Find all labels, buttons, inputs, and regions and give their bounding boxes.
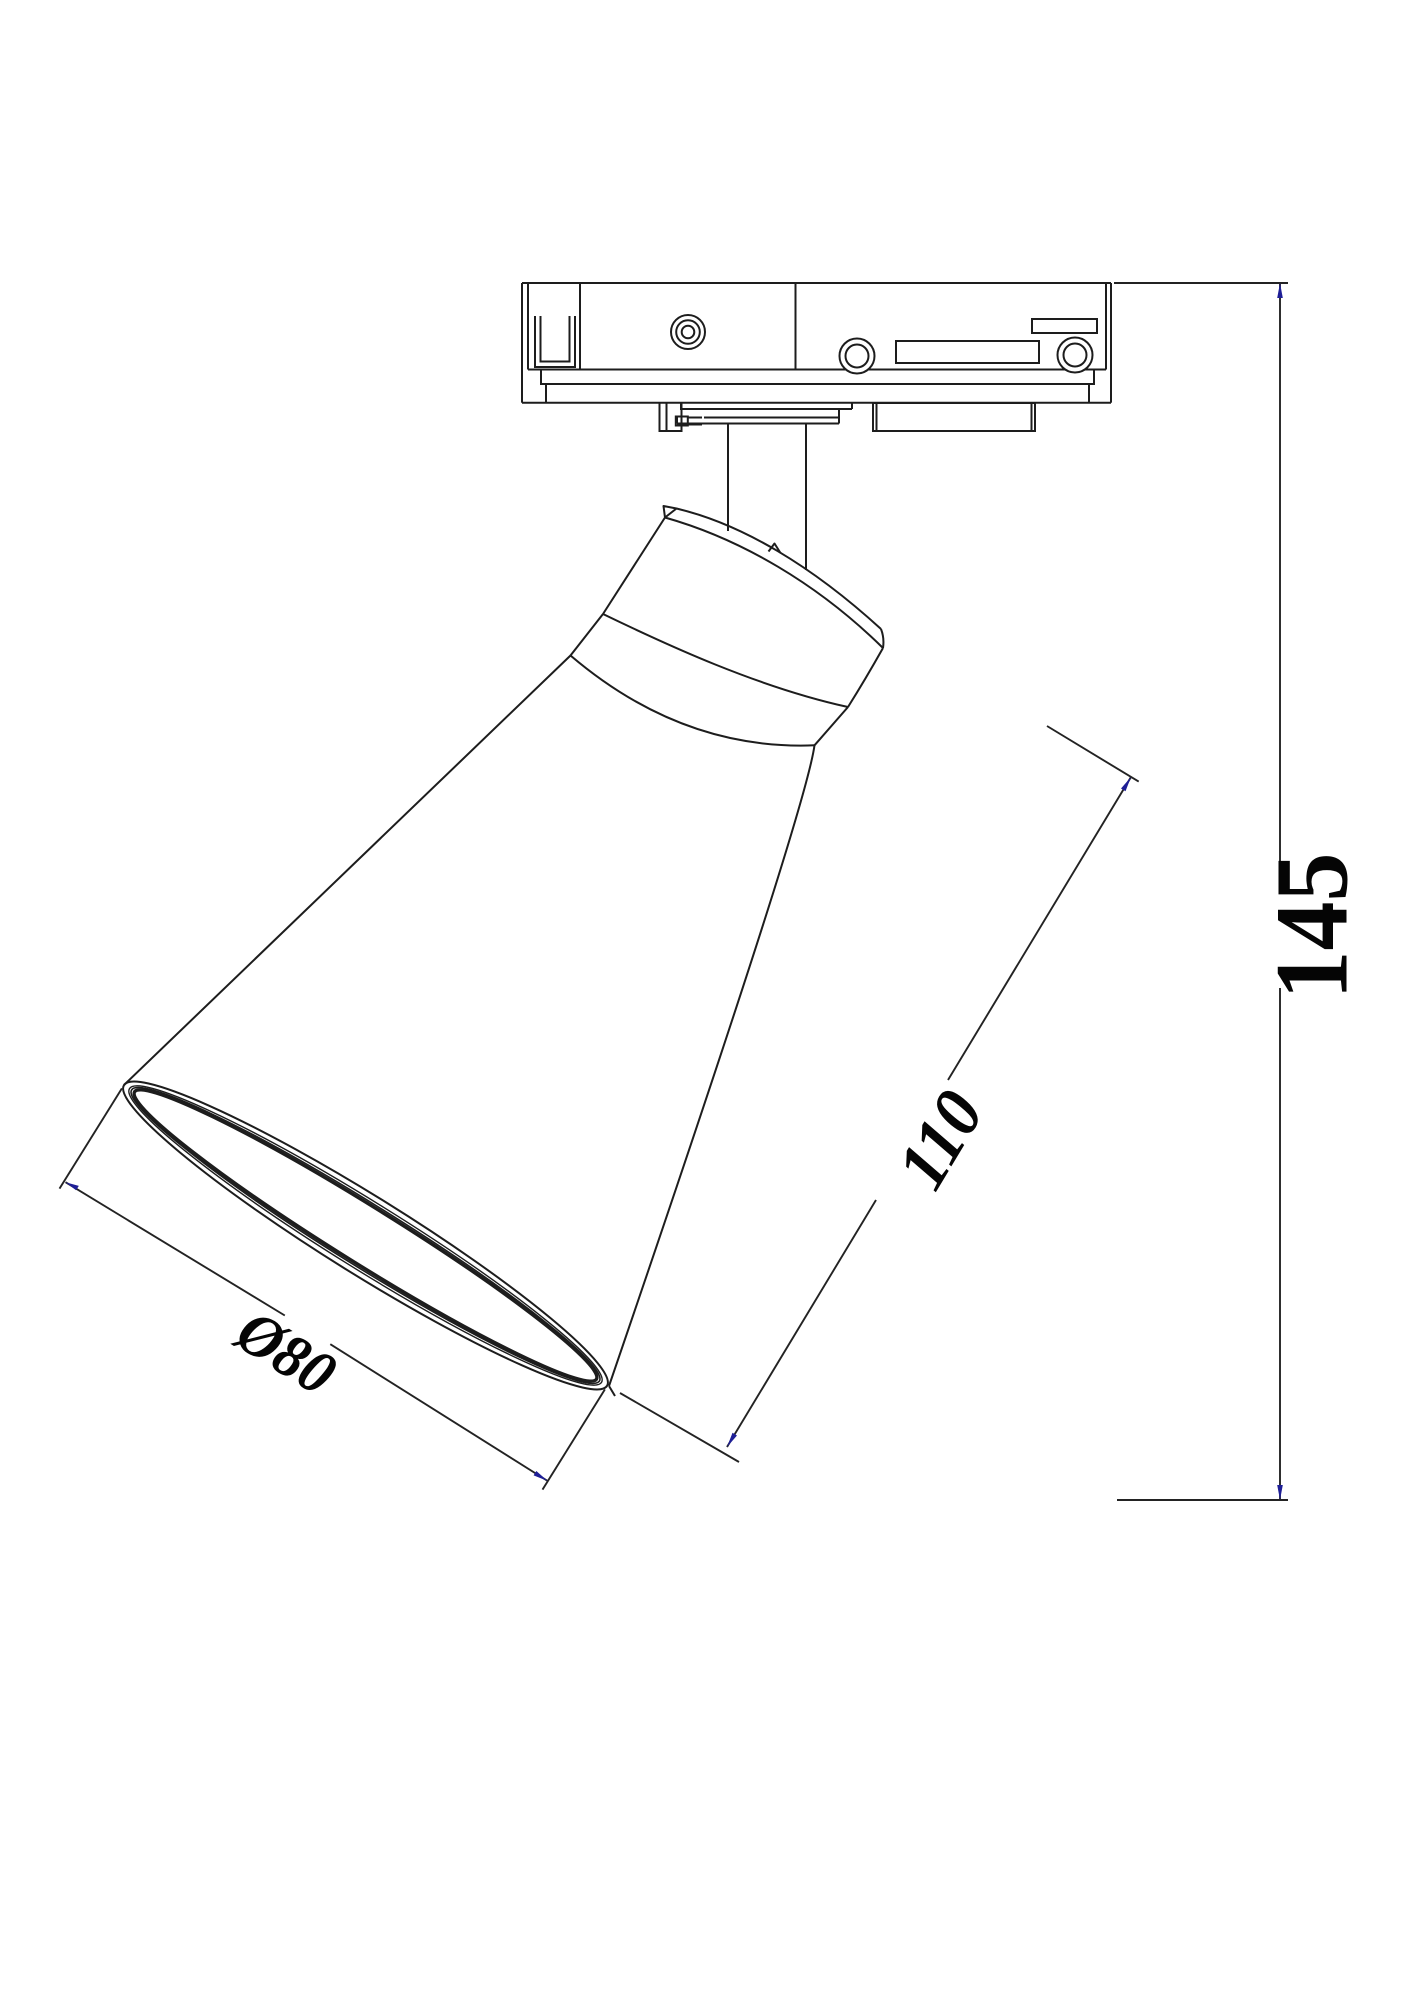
svg-text:145: 145	[1255, 853, 1370, 1000]
